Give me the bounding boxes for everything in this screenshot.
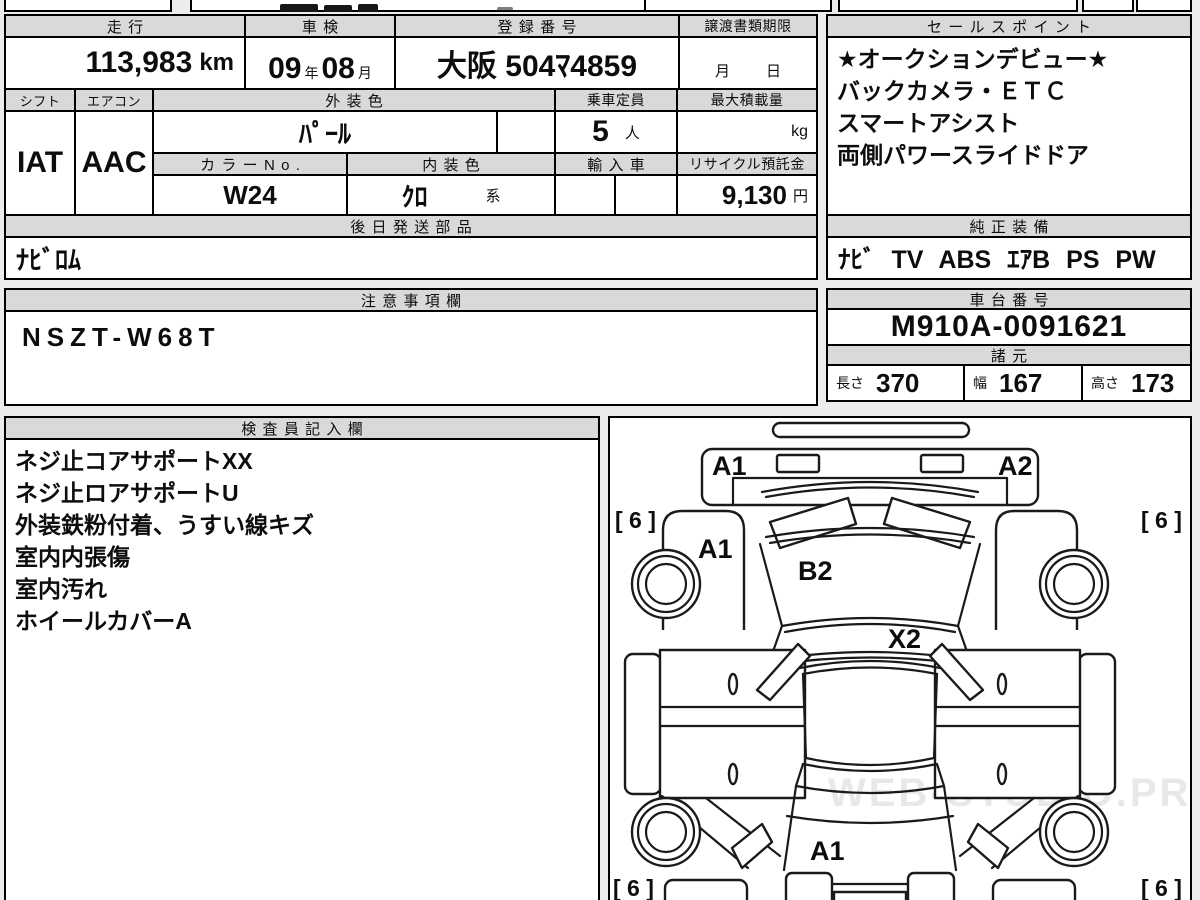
- inspector-header: 検査員記入欄: [4, 416, 600, 440]
- tire-mark-front-left: [ 6 ]: [615, 507, 656, 533]
- roof-rear-arc: [806, 758, 934, 765]
- top-strip-cell: [838, 0, 1078, 12]
- transfer-deadline-value: 月 日: [678, 36, 818, 90]
- rear-sill-right: [993, 880, 1075, 900]
- inspector-line: 室内内張傷: [15, 541, 589, 573]
- deadline-day-suffix: 日: [766, 60, 781, 81]
- wheel-front-right: [1040, 550, 1108, 618]
- interior-color-name: ｸﾛ: [401, 177, 427, 214]
- door-handle: [998, 674, 1006, 694]
- imported-header: 輸入車: [554, 152, 678, 176]
- rear-bumper-left: [786, 873, 832, 900]
- color-no-value: W24: [152, 174, 348, 216]
- mileage-unit: km: [199, 49, 234, 77]
- cautions-box: NSZT-W68T: [4, 310, 818, 406]
- interior-color-header: 内装色: [346, 152, 556, 176]
- door-handle: [998, 764, 1006, 784]
- mileage-number: 113,983: [86, 46, 193, 80]
- sales-point-line: 両側パワースライドドア: [837, 139, 1181, 171]
- tail-lamp-left: [732, 824, 772, 868]
- hood-bottom-arc: [785, 624, 955, 632]
- recycle-deposit-number: 9,130: [722, 180, 787, 211]
- aircon-value: AAC: [74, 110, 154, 216]
- damage-label-front-left: A1: [712, 451, 747, 481]
- roof-sides: [803, 674, 937, 758]
- imported-value-a: [554, 174, 616, 216]
- imported-value-b: [614, 174, 678, 216]
- color-no-header: カラーNo.: [152, 152, 348, 176]
- top-strip-shape: [773, 423, 969, 437]
- sales-points-box: ★オークションデビュー★ バックカメラ・ＥＴＣ スマートアシスト 両側パワースラ…: [826, 36, 1192, 216]
- top-strip-cell: [4, 0, 172, 12]
- sales-point-line: ★オークションデビュー★: [837, 43, 1181, 75]
- deadline-month-suffix: 月: [715, 60, 730, 81]
- mileage-header: 走行: [4, 14, 246, 38]
- inspector-line: ネジ止ロアサポートU: [15, 477, 589, 509]
- rear-bumper-right: [908, 873, 954, 900]
- mileage-value: 113,983 km: [4, 36, 246, 90]
- chassis-value: M910A-0091621: [826, 308, 1192, 346]
- side-sill-right: [1079, 654, 1115, 794]
- tire-mark-rear-left: [ 6 ]: [613, 875, 654, 900]
- equipment-value: ﾅﾋﾞ TV ABS ｴｱB PS PW: [826, 236, 1192, 280]
- rear-gate-arc: [787, 816, 953, 823]
- interior-color-value: ｸﾛ 系: [346, 174, 556, 216]
- registration-header: 登録番号: [394, 14, 680, 38]
- tire-mark-rear-right: [ 6 ]: [1141, 875, 1182, 900]
- spec-width-label: 幅: [973, 373, 987, 393]
- tire-mark-front-right: [ 6 ]: [1141, 507, 1182, 533]
- interior-color-suffix: 系: [486, 185, 501, 206]
- inspector-line: ネジ止コアサポートXX: [15, 445, 589, 477]
- rear-sill-left: [665, 880, 747, 900]
- recycle-deposit-unit: 円: [793, 185, 808, 206]
- hood-sides: [760, 544, 980, 626]
- side-sill-left: [625, 654, 661, 794]
- spec-height: 高さ 173: [1081, 364, 1192, 402]
- top-strip-cell: [1136, 0, 1192, 12]
- spec-length-label: 長さ: [836, 373, 864, 393]
- exterior-color-value: ﾊﾟｰﾙ: [152, 110, 498, 154]
- spec-height-value: 173: [1131, 368, 1174, 399]
- later-parts-header: 後日発送部品: [4, 214, 818, 238]
- inspector-line: ホイールカバーA: [15, 605, 589, 637]
- chassis-header: 車台番号: [826, 288, 1192, 310]
- damage-label-rear: A1: [810, 836, 845, 866]
- inspection-header: 車検: [244, 14, 396, 38]
- cautions-header: 注意事項欄: [4, 288, 818, 312]
- shift-value: IAT: [4, 110, 76, 216]
- sales-point-line: バックカメラ・ＥＴＣ: [837, 75, 1181, 107]
- cautions-value: NSZT-W68T: [6, 312, 816, 363]
- door-handle: [729, 674, 737, 694]
- spec-width: 幅 167: [963, 364, 1083, 402]
- transfer-deadline-header: 譲渡書類期限: [678, 14, 818, 38]
- top-strip-cell: [190, 0, 646, 12]
- damage-diagram-panel: WEB-STUDIO.PRO: [608, 416, 1192, 900]
- spec-height-label: 高さ: [1091, 373, 1119, 393]
- recycle-deposit-header: リサイクル預託金: [676, 152, 818, 176]
- spec-length: 長さ 370: [826, 364, 965, 402]
- inspector-line: 室内汚れ: [15, 573, 589, 605]
- max-load-header: 最大積載量: [676, 88, 818, 112]
- capacity-number: 5: [592, 115, 609, 149]
- exterior-color-sub-cell: [496, 110, 556, 154]
- inspector-box: ネジ止コアサポートXX ネジ止ロアサポートU 外装鉄粉付着、うすい線キズ 室内内…: [4, 438, 600, 900]
- sales-point-line: スマートアシスト: [837, 107, 1181, 139]
- roof-front-arc: [803, 668, 937, 675]
- later-parts-value: ﾅﾋﾞﾛﾑ: [4, 236, 818, 280]
- capacity-header: 乗車定員: [554, 88, 678, 112]
- damage-label-fender: A1: [698, 534, 733, 564]
- door-handle: [729, 764, 737, 784]
- exterior-color-header: 外装色: [152, 88, 556, 112]
- inspection-year: 09: [268, 52, 301, 86]
- recycle-deposit-value: 9,130 円: [676, 174, 818, 216]
- capacity-value: 5 人: [554, 110, 678, 154]
- max-load-value: kg: [676, 110, 818, 154]
- wheel-rear-left: [632, 798, 700, 866]
- inspection-year-suffix: 年: [305, 63, 319, 83]
- sales-points-header: セールスポイント: [826, 14, 1192, 38]
- damage-label-hood: B2: [798, 556, 833, 586]
- wheel-front-left: [632, 550, 700, 618]
- tail-lamp-right: [968, 824, 1008, 868]
- inspection-month: 08: [322, 52, 355, 86]
- inspection-value: 09 年 08 月: [244, 36, 396, 90]
- damage-label-front-right: A2: [998, 451, 1033, 481]
- aircon-header: エアコン: [74, 88, 154, 112]
- top-strip-cell: [1082, 0, 1134, 12]
- top-strip-cell: [644, 0, 832, 12]
- capacity-unit: 人: [625, 122, 640, 143]
- specs-header: 諸元: [826, 344, 1192, 366]
- bumper-rect-left: [777, 455, 819, 472]
- wheel-rear-right: [1040, 798, 1108, 866]
- damage-label-cowl: X2: [888, 624, 921, 654]
- auction-sheet: 走行 車検 登録番号 譲渡書類期限 113,983 km 09 年 08 月 大…: [0, 0, 1200, 900]
- shift-header: シフト: [4, 88, 76, 112]
- inspection-month-suffix: 月: [358, 63, 372, 83]
- rear-bumper-center: [834, 892, 906, 900]
- registration-value: 大阪 504ﾏ4859: [394, 36, 680, 90]
- bumper-rect-right: [921, 455, 963, 472]
- car-diagram: WEB-STUDIO.PRO: [610, 418, 1190, 900]
- spec-width-value: 167: [999, 368, 1042, 399]
- inspector-line: 外装鉄粉付着、うすい線キズ: [15, 509, 589, 541]
- spec-length-value: 370: [876, 368, 919, 399]
- equipment-header: 純正装備: [826, 214, 1192, 238]
